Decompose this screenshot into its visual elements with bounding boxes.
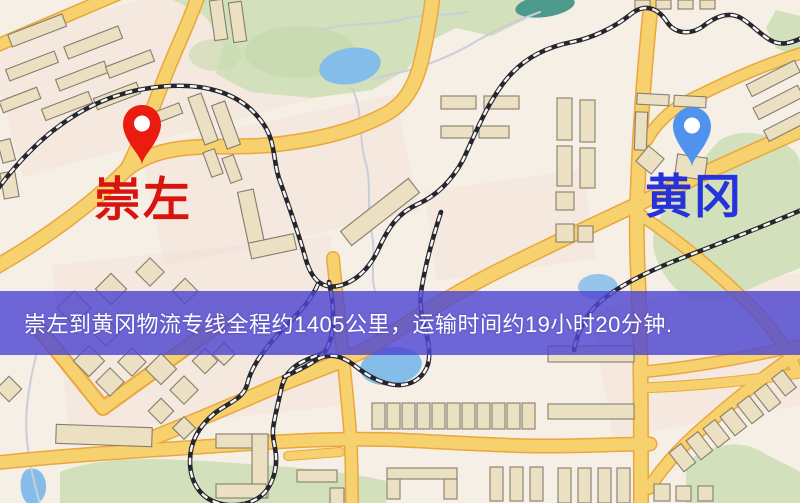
- destination-pin-icon[interactable]: [670, 105, 714, 169]
- origin-pin-icon[interactable]: [120, 103, 164, 167]
- route-info-text: 崇左到黄冈物流专线全程约1405公里，运输时间约19小时20分钟.: [0, 307, 673, 339]
- origin-city-label: 崇左: [94, 176, 192, 223]
- map-canvas: [0, 0, 800, 503]
- route-info-banner: 崇左到黄冈物流专线全程约1405公里，运输时间约19小时20分钟.: [0, 291, 800, 355]
- logistics-route-map: 崇左到黄冈物流专线全程约1405公里，运输时间约19小时20分钟. 崇左 黄冈: [0, 0, 800, 503]
- destination-city-label: 黄冈: [645, 173, 743, 220]
